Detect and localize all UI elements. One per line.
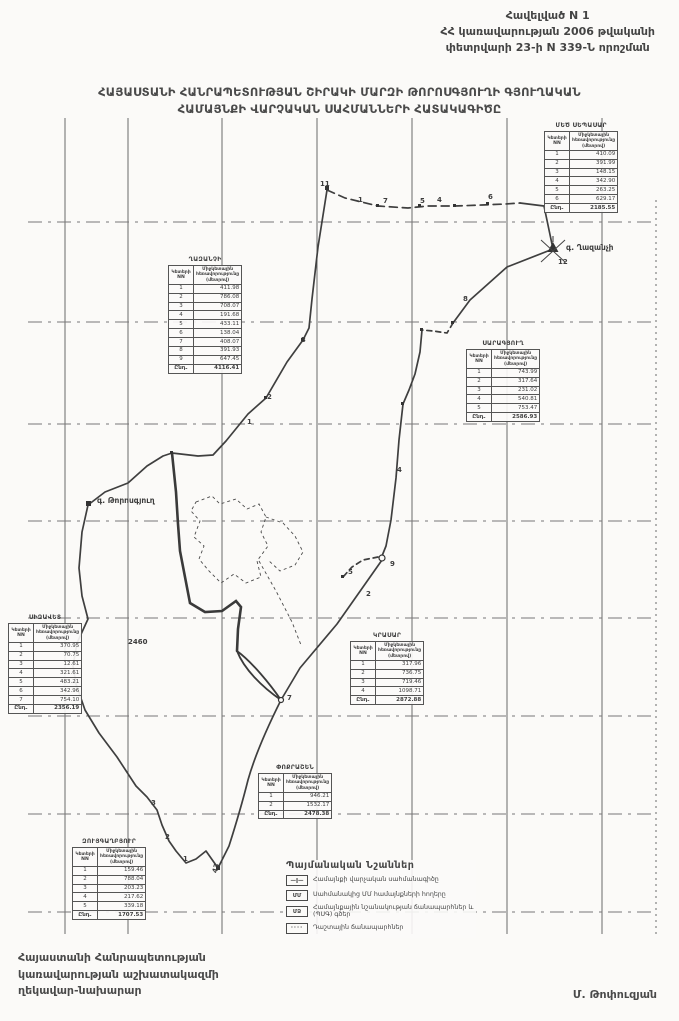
table-row: 1370.95 — [9, 642, 82, 651]
table-row: 3203.23 — [73, 884, 146, 893]
table-row: 7754.10 — [9, 696, 82, 705]
table-row: 4191.68 — [169, 311, 242, 320]
distance-cell: 391.99 — [570, 159, 618, 168]
distance-cell: 370.95 — [34, 642, 82, 651]
table-row: 6629.17 — [545, 195, 618, 204]
point-number-cell: 2 — [169, 293, 194, 302]
point-number-cell: 2 — [259, 801, 284, 810]
distance-cell: 317.64 — [492, 377, 540, 386]
table-row: 7408.07 — [169, 338, 242, 347]
column-header: Կետերի NN — [467, 350, 492, 369]
boundary-table: ՓՈՔՐԱՇԵՆԿետերի NNՄիջկետային հեռավորությո… — [258, 764, 332, 819]
table-row: 1743.99 — [467, 368, 540, 377]
point-number-cell: 6 — [545, 195, 570, 204]
point-number-cell: 3 — [73, 884, 98, 893]
legend-title: Պայմանական Նշաններ — [286, 860, 476, 871]
table-row: 312.61 — [9, 660, 82, 669]
distance-cell: 754.10 — [34, 696, 82, 705]
table-row: 1159.46 — [73, 866, 146, 875]
distance-table: Կետերի NNՄիջկետային հեռավորությունը (մետ… — [350, 641, 424, 705]
point-number-cell: 3 — [351, 678, 376, 687]
column-header: Միջկետային հեռավորությունը (մետրով) — [570, 132, 618, 151]
boundary-point-label: 9 — [390, 560, 395, 568]
point-number-cell: 3 — [467, 386, 492, 395]
neighbor-community-name: ՂԱԶԱՆՉԻ — [168, 256, 242, 263]
boundary-table: ՍԱՐԱԳՅՈՒՂԿետերի NNՄիջկետային հեռավորությ… — [466, 340, 540, 422]
distance-cell: 231.02 — [492, 386, 540, 395]
boundary-point-label: 12 — [558, 258, 568, 266]
point-number-cell: 4 — [73, 893, 98, 902]
column-header: Կետերի NN — [9, 624, 34, 643]
boundary-point-label: 2 — [366, 590, 371, 598]
table-row: 1411.98 — [169, 284, 242, 293]
legend-symbol-icon: ՄՁ — [286, 906, 308, 917]
point-number-cell: 1 — [73, 866, 98, 875]
column-header: Միջկետային հեռավորությունը (մետրով) — [34, 624, 82, 643]
table-row: 3708.07 — [169, 302, 242, 311]
legend-item: —ǀ—Համայնքի վարչական սահմանագիծը — [286, 875, 476, 886]
distance-cell: 647.45 — [194, 355, 242, 364]
boundary-point-label: 4 — [437, 196, 442, 204]
table-row: 5263.25 — [545, 186, 618, 195]
distance-cell: 946.21 — [284, 792, 332, 801]
point-number-cell: 7 — [9, 696, 34, 705]
footer-line-3: ղեկավար-նախարար — [18, 983, 219, 1000]
table-row: 2736.75 — [351, 669, 424, 678]
table-row: 3231.02 — [467, 386, 540, 395]
legend-symbol-icon: —ǀ— — [286, 875, 308, 886]
total-row: Ընդ.2185.55 — [545, 204, 618, 213]
distance-cell: 629.17 — [570, 195, 618, 204]
neighbor-community-name: ՍԻԶԱՎԵՏ — [8, 614, 82, 621]
distance-cell: 203.23 — [98, 884, 146, 893]
distance-cell: 540.81 — [492, 395, 540, 404]
total-label-cell: Ընդ. — [467, 413, 492, 422]
boundary-point-label: 3 — [301, 336, 306, 344]
total-value-cell: 4116.41 — [194, 364, 242, 373]
table-row: 6342.96 — [9, 687, 82, 696]
point-number-cell: 3 — [169, 302, 194, 311]
point-number-cell: 7 — [169, 338, 194, 347]
point-number-cell: 1 — [259, 792, 284, 801]
boundary-point-label: 4 — [397, 466, 402, 474]
distance-table: Կետերի NNՄիջկետային հեռավորությունը (մետ… — [8, 623, 82, 714]
table-row: 3719.46 — [351, 678, 424, 687]
table-row: 8391.93 — [169, 346, 242, 355]
point-number-cell: 4 — [351, 687, 376, 696]
total-label-cell: Ընդ. — [545, 204, 570, 213]
table-row: 4342.90 — [545, 177, 618, 186]
point-number-cell: 6 — [9, 687, 34, 696]
signature-name: Մ. Թոփուզյան — [573, 988, 657, 1001]
table-row: 2317.64 — [467, 377, 540, 386]
legend: Պայմանական Նշաններ —ǀ—Համայնքի վարչական … — [286, 860, 476, 938]
distance-cell: 708.07 — [194, 302, 242, 311]
neighbor-community-name: ՓՈՔՐԱՇԵՆ — [258, 764, 332, 771]
boundary-table: ՍԻԶԱՎԵՏԿետերի NNՄիջկետային հեռավորությու… — [8, 614, 82, 714]
point-number-cell: 5 — [467, 404, 492, 413]
distance-cell: 743.99 — [492, 368, 540, 377]
point-number-cell: 4 — [9, 669, 34, 678]
distance-cell: 317.96 — [376, 660, 424, 669]
distance-cell: 753.47 — [492, 404, 540, 413]
total-label-cell: Ընդ. — [169, 364, 194, 373]
point-number-cell: 8 — [169, 346, 194, 355]
total-row: Ընդ.4116.41 — [169, 364, 242, 373]
scanned-decree-map-page: Հավելված N 1 ՀՀ կառավարության 2006 թվակա… — [0, 0, 679, 1021]
column-header: Կետերի NN — [259, 774, 284, 793]
column-header: Միջկետային հեռավորությունը (մետրով) — [194, 266, 242, 285]
table-row: 270.75 — [9, 651, 82, 660]
total-row: Ընդ.1707.53 — [73, 911, 146, 920]
point-number-cell: 3 — [545, 168, 570, 177]
boundary-point-label: 3 — [151, 799, 156, 807]
legend-symbol-icon: ՄՄ — [286, 890, 308, 901]
table-row: 1317.96 — [351, 660, 424, 669]
distance-cell: 339.18 — [98, 902, 146, 911]
total-value-cell: 2356.19 — [34, 704, 82, 713]
distance-cell: 191.68 — [194, 311, 242, 320]
distance-table: Կետերի NNՄիջկետային հեռավորությունը (մետ… — [466, 349, 540, 422]
point-number-cell: 2 — [545, 159, 570, 168]
point-number-cell: 1 — [467, 368, 492, 377]
distance-cell: 719.46 — [376, 678, 424, 687]
table-row: 4321.61 — [9, 669, 82, 678]
total-label-cell: Ընդ. — [9, 704, 34, 713]
neighbor-community-name: ՄԵԾ ՍԵՊԱՍԱՐ — [544, 122, 618, 129]
neighbor-community-name: ՍԱՐԱԳՅՈՒՂ — [466, 340, 540, 347]
boundary-point-label: 5 — [348, 568, 353, 576]
table-row: 9647.45 — [169, 355, 242, 364]
distance-cell: 483.21 — [34, 678, 82, 687]
point-number-cell: 5 — [545, 186, 570, 195]
boundary-point-label: 6 — [488, 193, 493, 201]
point-number-cell: 1 — [9, 642, 34, 651]
boundary-point-label: 1 — [247, 418, 252, 426]
table-row: 1946.21 — [259, 792, 332, 801]
point-number-cell: 2 — [351, 669, 376, 678]
column-header: Կետերի NN — [169, 266, 194, 285]
boundary-point-label: 2 — [267, 393, 272, 401]
legend-item-label: Սահմանակից ՄՄ համայնքների հողերը — [313, 892, 446, 899]
boundary-point-label: 5 — [420, 197, 425, 205]
table-row: 4540.81 — [467, 395, 540, 404]
legend-items: —ǀ—Համայնքի վարչական սահմանագիծըՄՄՍահման… — [286, 875, 476, 934]
column-header: Կետերի NN — [351, 642, 376, 661]
legend-item-label: Համայնքի վարչական սահմանագիծը — [313, 877, 439, 884]
table-row: 41098.71 — [351, 687, 424, 696]
boundary-point-label: 1 — [183, 855, 188, 863]
distance-cell: 159.46 — [98, 866, 146, 875]
boundary-point-label: 2460 — [128, 638, 147, 646]
distance-cell: 411.98 — [194, 284, 242, 293]
total-value-cell: 2872.88 — [376, 696, 424, 705]
table-row: 5433.11 — [169, 320, 242, 329]
distance-cell: 263.25 — [570, 186, 618, 195]
point-number-cell: 1 — [351, 660, 376, 669]
boundary-table: ԶՈՒՅԳԱՂԲՅՈՒՐԿետերի NNՄիջկետային հեռավորո… — [72, 838, 146, 920]
distance-table: Կետերի NNՄիջկետային հեռավորությունը (մետ… — [72, 847, 146, 920]
place-name-label: գ. Ղազանչի — [566, 243, 613, 252]
place-name-label: գ. Թորոսգյուղ — [97, 496, 155, 505]
total-label-cell: Ընդ. — [73, 911, 98, 920]
point-number-cell: 2 — [9, 651, 34, 660]
total-value-cell: 1707.53 — [98, 911, 146, 920]
boundary-point-label: 2 — [165, 833, 170, 841]
table-row: 2786.08 — [169, 293, 242, 302]
boundary-point-label: 7 — [287, 694, 292, 702]
distance-cell: 70.75 — [34, 651, 82, 660]
point-number-cell: 5 — [73, 902, 98, 911]
column-header: Միջկետային հեռավորությունը (մետրով) — [376, 642, 424, 661]
footer-line-1: Հայաստանի Հանրապետության — [18, 950, 219, 967]
total-label-cell: Ընդ. — [351, 696, 376, 705]
column-header: Միջկետային հեռավորությունը (մետրով) — [284, 774, 332, 793]
distance-cell: 148.15 — [570, 168, 618, 177]
point-number-cell: 2 — [467, 377, 492, 386]
distance-cell: 1532.17 — [284, 801, 332, 810]
column-header: Միջկետային հեռավորությունը (մետրով) — [492, 350, 540, 369]
table-row: 5753.47 — [467, 404, 540, 413]
table-row: 4217.62 — [73, 893, 146, 902]
footer-signatory-block: Հայաստանի Հանրապետության կառավարության ա… — [18, 950, 219, 1000]
point-number-cell: 4 — [467, 395, 492, 404]
distance-cell: 217.62 — [98, 893, 146, 902]
column-header: Միջկետային հեռավորությունը (մետրով) — [98, 848, 146, 867]
distance-cell: 342.96 — [34, 687, 82, 696]
total-value-cell: 2586.93 — [492, 413, 540, 422]
point-number-cell: 1 — [169, 284, 194, 293]
distance-table: Կետերի NNՄիջկետային հեռավորությունը (մետ… — [258, 773, 332, 819]
point-number-cell: 5 — [169, 320, 194, 329]
legend-item: ՄՁՀամայնքային նշանակության ճանապարհներ և… — [286, 905, 476, 919]
distance-table: Կետերի NNՄիջկետային հեռավորությունը (մետ… — [168, 265, 242, 374]
legend-symbol-icon: ···· — [286, 923, 308, 934]
footer-line-2: կառավարության աշխատակազմի — [18, 967, 219, 984]
distance-table: Կետերի NNՄիջկետային հեռավորությունը (մետ… — [544, 131, 618, 213]
distance-cell: 786.08 — [194, 293, 242, 302]
legend-item-label: Համայնքային նշանակության ճանապարհներ և (… — [313, 905, 476, 919]
table-row: 2788.04 — [73, 875, 146, 884]
boundary-point-label: 11 — [320, 180, 330, 188]
distance-cell: 12.61 — [34, 660, 82, 669]
distance-cell: 391.93 — [194, 346, 242, 355]
point-number-cell: 5 — [9, 678, 34, 687]
column-header: Կետերի NN — [73, 848, 98, 867]
distance-cell: 433.11 — [194, 320, 242, 329]
distance-cell: 736.75 — [376, 669, 424, 678]
point-number-cell: 2 — [73, 875, 98, 884]
distance-cell: 408.07 — [194, 338, 242, 347]
table-row: 21532.17 — [259, 801, 332, 810]
table-row: 6138.04 — [169, 329, 242, 338]
legend-item-label: Դաշտային ճանապարհներ — [313, 925, 403, 932]
distance-cell: 321.61 — [34, 669, 82, 678]
neighbor-community-name: ԶՈՒՅԳԱՂԲՅՈՒՐ — [72, 838, 146, 845]
neighbor-community-name: ԿՐԱՍԱՐ — [350, 632, 424, 639]
point-number-cell: 6 — [169, 329, 194, 338]
distance-cell: 410.09 — [570, 150, 618, 159]
total-value-cell: 2478.38 — [284, 810, 332, 819]
distance-cell: 342.90 — [570, 177, 618, 186]
total-label-cell: Ընդ. — [259, 810, 284, 819]
boundary-point-label: 8 — [463, 295, 468, 303]
distance-cell: 788.04 — [98, 875, 146, 884]
boundary-point-label: 7 — [383, 197, 388, 205]
point-number-cell: 4 — [545, 177, 570, 186]
table-row: 1410.09 — [545, 150, 618, 159]
table-row: 5339.18 — [73, 902, 146, 911]
total-row: Ընդ.2586.93 — [467, 413, 540, 422]
distance-cell: 1098.71 — [376, 687, 424, 696]
point-number-cell: 3 — [9, 660, 34, 669]
table-row: 5483.21 — [9, 678, 82, 687]
boundary-point-label: 1 — [358, 196, 363, 204]
distance-cell: 138.04 — [194, 329, 242, 338]
total-row: Ընդ.2872.88 — [351, 696, 424, 705]
boundary-table: ԿՐԱՍԱՐԿետերի NNՄիջկետային հեռավորություն… — [350, 632, 424, 705]
total-row: Ընդ.2478.38 — [259, 810, 332, 819]
total-row: Ընդ.2356.19 — [9, 704, 82, 713]
legend-item: ՄՄՍահմանակից ՄՄ համայնքների հողերը — [286, 890, 476, 901]
total-value-cell: 2185.55 — [570, 204, 618, 213]
point-number-cell: 9 — [169, 355, 194, 364]
table-row: 2391.99 — [545, 159, 618, 168]
table-row: 3148.15 — [545, 168, 618, 177]
point-number-cell: 1 — [545, 150, 570, 159]
boundary-table: ՂԱԶԱՆՉԻԿետերի NNՄիջկետային հեռավորությու… — [168, 256, 242, 374]
boundary-table: ՄԵԾ ՍԵՊԱՍԱՐԿետերի NNՄիջկետային հեռավորու… — [544, 122, 618, 213]
legend-item: ····Դաշտային ճանապարհներ — [286, 923, 476, 934]
column-header: Կետերի NN — [545, 132, 570, 151]
point-number-cell: 4 — [169, 311, 194, 320]
